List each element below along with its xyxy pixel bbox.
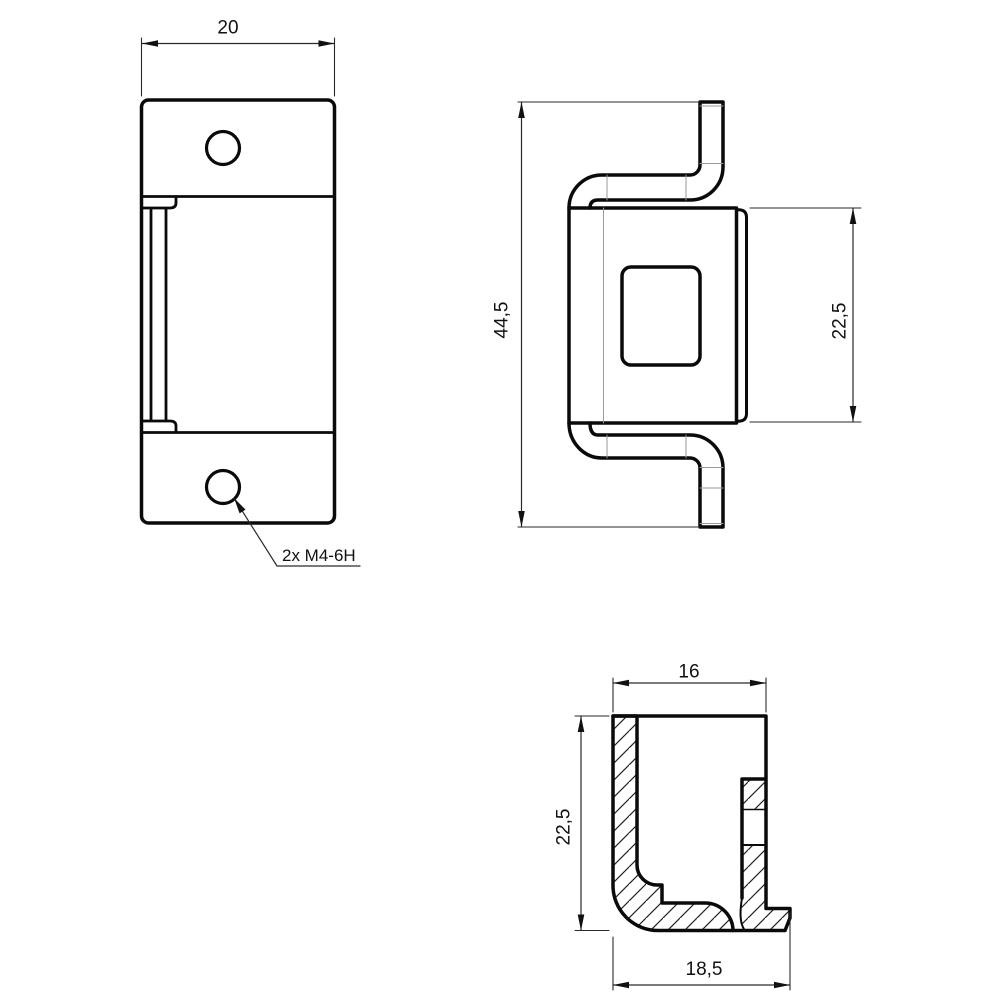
dim-front-width-extension-lines (142, 38, 335, 96)
dim-section-height-extension-lines (575, 716, 609, 931)
thread-callout-label: 2x M4-6H (282, 546, 356, 565)
front-view: 20 2x M4-6H (142, 18, 361, 567)
section-right-wall-upper (742, 779, 766, 810)
side-view: 44,5 22,5 (492, 102, 862, 527)
dim-section-top-label: 16 (678, 662, 699, 683)
drawing-svg: 20 2x M4-6H 44,5 22,5 (0, 0, 1000, 1000)
front-outline (142, 100, 335, 523)
technical-drawing-canvas: 20 2x M4-6H 44,5 22,5 (0, 0, 1000, 1000)
side-bottom-flange (569, 423, 723, 527)
front-hole-top (207, 132, 240, 165)
section-left-wall-and-bottom (613, 716, 733, 931)
dim-side-overall-label: 44,5 (492, 302, 513, 339)
dim-front-width: 20 (142, 18, 335, 97)
side-top-flange (569, 102, 723, 208)
dim-section-height-label: 22,5 (554, 809, 575, 846)
dim-section-bottom-label: 18,5 (686, 959, 723, 980)
side-window (622, 267, 700, 365)
dim-front-width-label: 20 (217, 18, 238, 39)
section-view: 16 22,5 18,5 (554, 662, 791, 991)
dim-section-top-width: 16 (613, 662, 766, 713)
dim-section-height: 22,5 (554, 716, 610, 931)
dim-side-body-height: 22,5 (750, 208, 861, 422)
dim-side-body-label: 22,5 (830, 303, 851, 340)
